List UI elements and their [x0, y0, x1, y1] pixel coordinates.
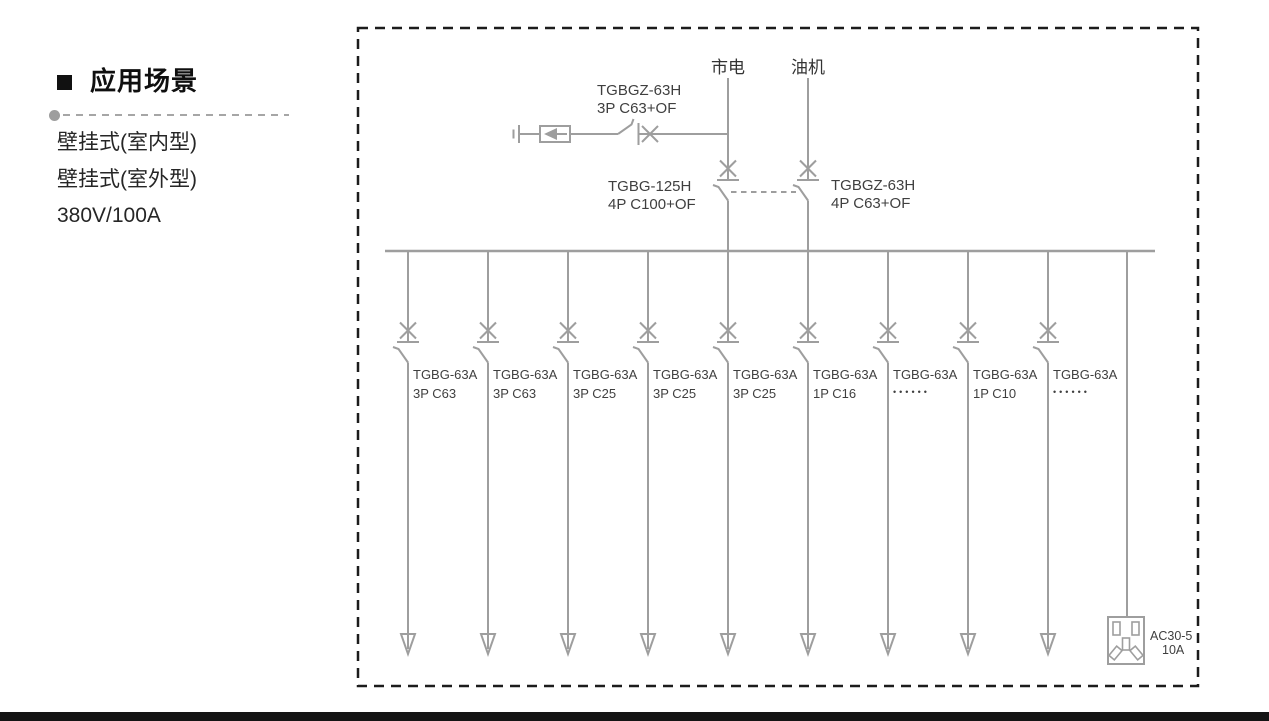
main-breaker-right-spec-label: 4P C63+OF [831, 195, 910, 212]
breaker-icon [553, 323, 579, 363]
feeder [793, 251, 819, 654]
feeder-spec-label: 3P C63 [493, 386, 536, 401]
feeder-spec-label: 3P C25 [733, 386, 776, 401]
page: 应用场景 壁挂式(室内型) 壁挂式(室外型) 380V/100A [0, 0, 1269, 721]
main-breaker-left-spec-label: 4P C100+OF [608, 196, 696, 213]
feeder [633, 251, 659, 654]
feeder-model-label: TGBG-63A [733, 367, 798, 382]
breaker-icon [633, 323, 659, 363]
feeder-model-label: TGBG-63A [653, 367, 718, 382]
feeder-spec-label: 3P C63 [413, 386, 456, 401]
diagram-canvas: 市电 油机 TGBGZ-63H 3P C63+OF TGBG-125H 4P C… [0, 0, 1269, 721]
feeder-spec-label: 1P C10 [973, 386, 1016, 401]
spd-breaker-model-label: TGBGZ-63H [597, 82, 681, 99]
spd-breaker-spec-label: 3P C63+OF [597, 100, 676, 117]
socket-model-label: AC30-5 [1150, 629, 1192, 643]
socket-icon [1108, 617, 1144, 664]
main-breaker-right-model-label: TGBGZ-63H [831, 177, 915, 194]
feeder-spec-label: 1P C16 [813, 386, 856, 401]
feeder [553, 251, 579, 654]
breaker-icon [873, 323, 899, 363]
feeder-spec-label: •••••• [1053, 387, 1090, 397]
feeder-spec-label: •••••• [893, 387, 930, 397]
feeder-spec-label: 3P C25 [653, 386, 696, 401]
spd-branch [514, 119, 729, 145]
feeder-model-label: TGBG-63A [493, 367, 558, 382]
feeder-model-label: TGBG-63A [973, 367, 1038, 382]
feeder [393, 251, 419, 654]
feeder-model-label: TGBG-63A [1053, 367, 1118, 382]
generator-label: 油机 [791, 58, 825, 77]
socket-rating-label: 10A [1162, 643, 1185, 657]
breaker-icon [1033, 323, 1059, 363]
feeder [473, 251, 499, 654]
feeder [953, 251, 979, 654]
breaker-icon [473, 323, 499, 363]
feeder [1033, 251, 1059, 654]
breaker-icon [393, 323, 419, 363]
breaker-icon [713, 323, 739, 363]
feeder-model-label: TGBG-63A [893, 367, 958, 382]
main-breaker-left-model-label: TGBG-125H [608, 178, 691, 195]
feeder [873, 251, 899, 654]
spd-arrow-icon [544, 128, 557, 140]
breaker-icon [793, 323, 819, 363]
feeder-model-label: TGBG-63A [573, 367, 638, 382]
main-breaker-right-icon [793, 161, 819, 201]
main-breaker-left-icon [713, 161, 739, 201]
breaker-icon [953, 323, 979, 363]
mains-label: 市电 [711, 58, 745, 77]
spd-breaker-icon [618, 119, 658, 145]
feeder-spec-label: 3P C25 [573, 386, 616, 401]
feeder [713, 251, 739, 654]
bottom-bar [0, 712, 1269, 721]
feeder-model-label: TGBG-63A [413, 367, 478, 382]
feeder-model-label: TGBG-63A [813, 367, 878, 382]
